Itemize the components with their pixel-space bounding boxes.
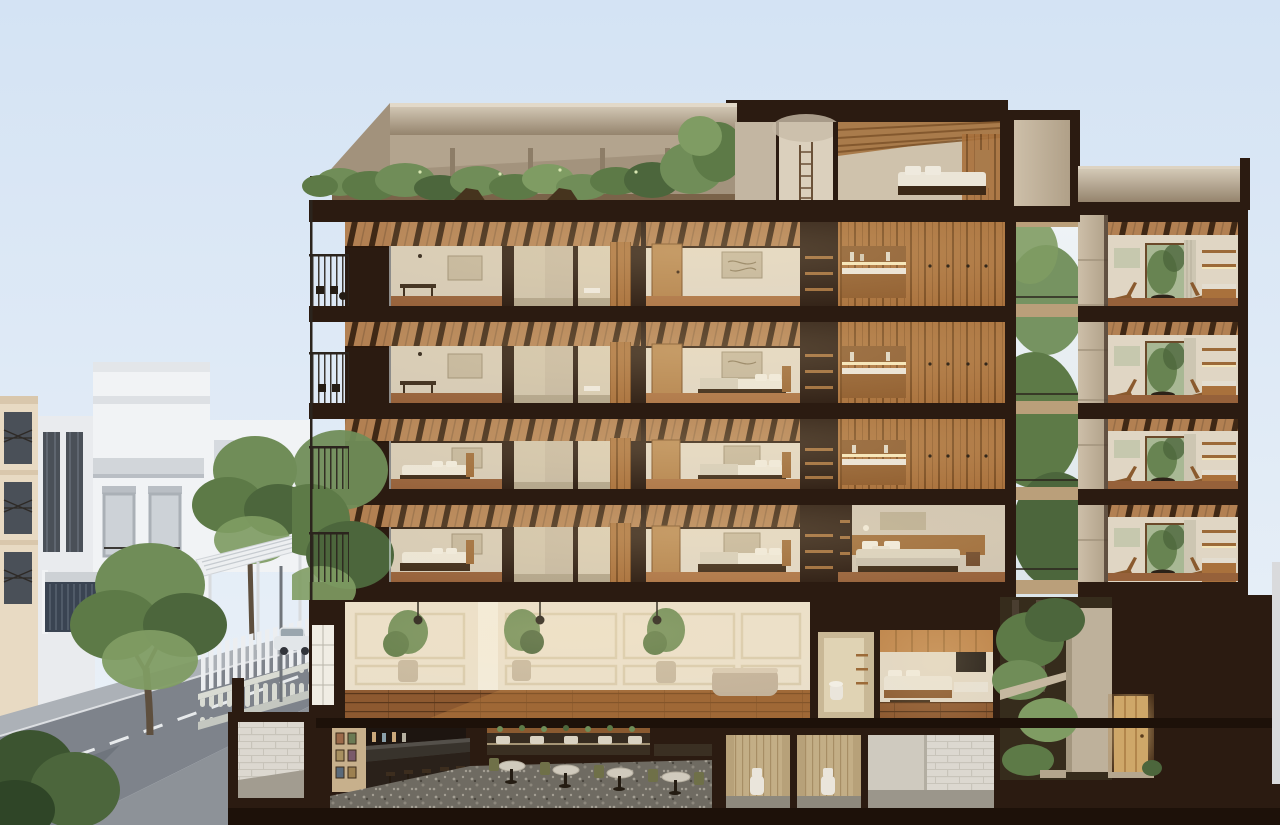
window: [66, 432, 83, 552]
balcony-f3: [309, 446, 349, 489]
architectural-section-render: Cut-away sectional rendering of a multi-…: [0, 0, 1280, 825]
curtain: [1184, 520, 1196, 578]
artwork: [1114, 346, 1140, 366]
wc-stall: [797, 735, 861, 808]
artwork: [1114, 528, 1140, 547]
wing-room-3: [1108, 419, 1238, 489]
toilet: [750, 776, 764, 795]
vault-room: [228, 712, 316, 810]
wing-room-5: [1108, 222, 1238, 306]
floor-3: [345, 419, 1005, 489]
curtain: [1184, 240, 1196, 304]
curtain: [1184, 434, 1196, 486]
window: [43, 432, 60, 552]
garden-courtyard: [992, 597, 1112, 780]
bistro-table: [339, 292, 347, 300]
right-wing-roof: [1078, 158, 1250, 212]
partition-wall: [868, 735, 926, 797]
bistro-chair: [318, 384, 326, 392]
cornice: [93, 458, 210, 474]
balcony-f4: [309, 352, 349, 403]
brick-room: [868, 735, 994, 808]
penthouse-concrete-wall: [735, 122, 778, 205]
alcove-plant: [1142, 760, 1162, 776]
bistro-chair: [316, 286, 324, 294]
ground-bedroom: [880, 630, 993, 718]
wing-room-4: [1108, 322, 1238, 403]
wc-stall: [726, 735, 790, 808]
penthouse-stair-room: [772, 114, 840, 205]
balcony-f5: [309, 254, 349, 306]
ground-bathroom: [818, 632, 874, 718]
bistro-chair: [330, 286, 338, 294]
floor-2: [345, 505, 1005, 582]
ground-slab: [309, 718, 1280, 728]
artwork: [1114, 440, 1140, 458]
artwork: [1114, 248, 1140, 268]
section-render-canvas: Cut-away sectional rendering of a multi-…: [0, 0, 1280, 825]
bench: [654, 744, 712, 756]
distant-wall-strip: [1272, 562, 1280, 784]
floor-5: [345, 222, 1005, 306]
banquette: [487, 725, 650, 755]
bistro-chair: [332, 384, 340, 392]
entry-alcove: [1108, 694, 1162, 778]
lobby: [345, 602, 810, 718]
curtain: [1184, 338, 1196, 400]
foundation-band: [228, 808, 1280, 825]
stair-tower: [1005, 110, 1080, 222]
white-building-a: [38, 416, 95, 708]
wing-room-2: [1108, 505, 1238, 582]
cream-building: [0, 396, 38, 736]
balcony-f2: [309, 532, 349, 582]
toilet: [821, 776, 835, 795]
floor-4: [345, 322, 1005, 403]
building-section: [228, 100, 1280, 825]
